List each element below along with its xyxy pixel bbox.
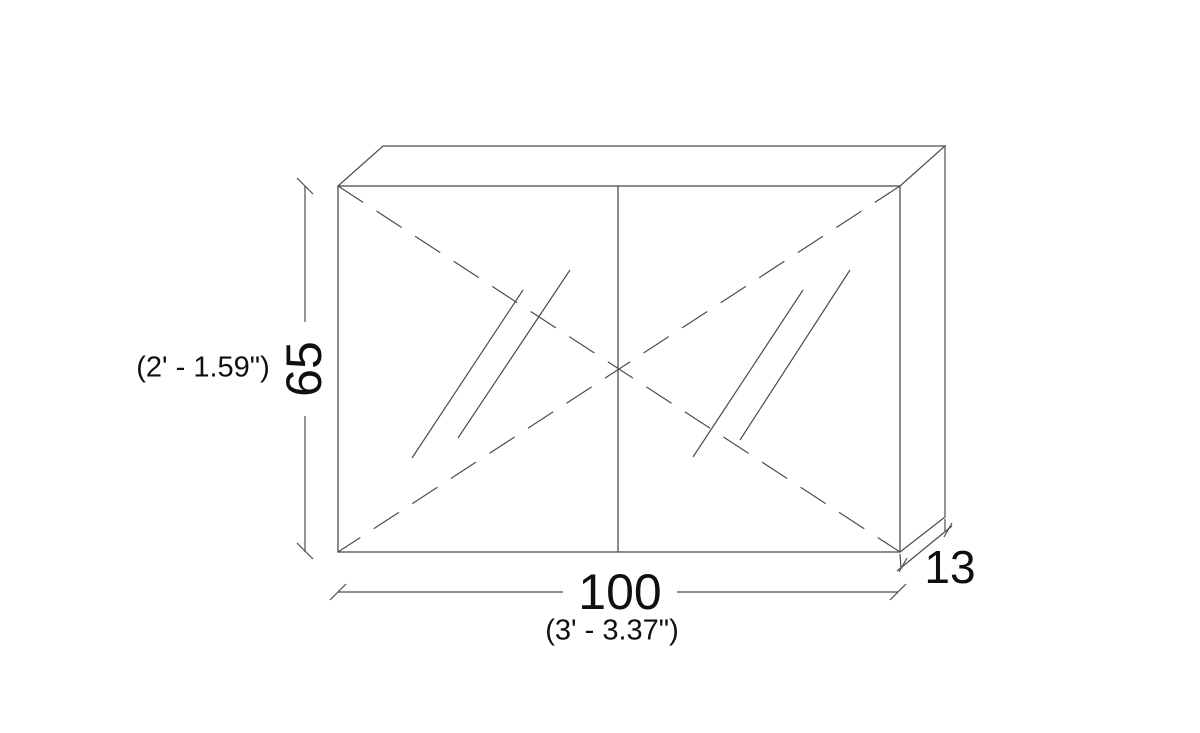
height-dimension-imperial: (2' - 1.59")	[136, 354, 270, 383]
drawing-canvas: 65 (2' - 1.59") 100 (3' - 3.37") 13	[0, 0, 1200, 733]
depth-dim-witness-front	[900, 554, 901, 569]
depth-dimension-value: 13	[924, 544, 975, 590]
width-dimension-value: 100	[578, 567, 661, 617]
height-dimension-value: 65	[279, 341, 329, 397]
door-swing-dashed-x	[338, 186, 900, 552]
cabinet-top-face-outline	[338, 146, 945, 186]
mirror-glass-marks-left	[412, 270, 570, 458]
cabinet-side-face	[900, 146, 945, 552]
mirror-mark-right-2	[740, 270, 850, 440]
mirror-mark-right-1	[693, 290, 803, 457]
width-dimension-imperial: (3' - 3.37")	[545, 617, 679, 646]
mirror-mark-left-2	[458, 270, 570, 438]
mirror-glass-marks-right	[693, 270, 850, 457]
mirror-mark-left-1	[412, 290, 523, 458]
cabinet-top-face	[338, 146, 945, 186]
